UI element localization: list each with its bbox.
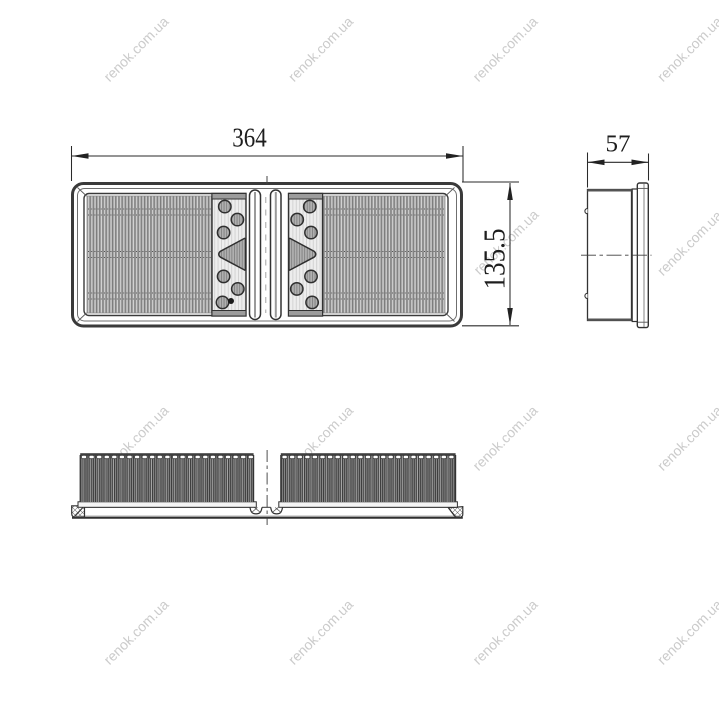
svg-text:135.5: 135.5 bbox=[477, 229, 512, 290]
svg-text:57: 57 bbox=[606, 131, 631, 158]
svg-text:364: 364 bbox=[232, 122, 267, 153]
